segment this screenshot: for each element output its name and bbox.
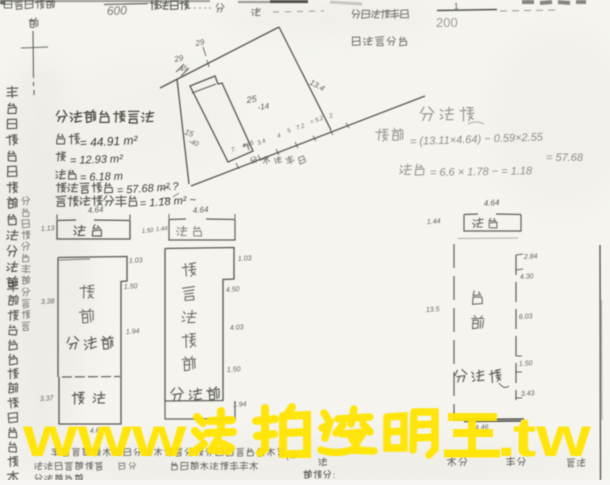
svg-text:= 57.68: = 57.68	[546, 152, 584, 164]
svg-text:1.50: 1.50	[124, 283, 138, 291]
svg-text:3.43: 3.43	[521, 390, 535, 398]
svg-text:1.94: 1.94	[233, 401, 247, 409]
svg-text:1.44: 1.44	[427, 218, 441, 226]
svg-text:4.64: 4.64	[193, 205, 210, 215]
svg-text:2.84: 2.84	[523, 253, 538, 261]
svg-text:4.64: 4.64	[88, 205, 105, 215]
svg-text:4.30: 4.30	[520, 273, 534, 281]
svg-text:1.44: 1.44	[156, 226, 169, 233]
svg-text:600: 600	[107, 3, 128, 18]
svg-text:1.03: 1.03	[238, 255, 252, 263]
svg-text:-14: -14	[257, 101, 270, 112]
svg-text:1.50: 1.50	[142, 228, 155, 235]
svg-text:tw: tw	[513, 407, 592, 469]
svg-text:1.03: 1.03	[129, 257, 143, 265]
svg-text:3.38: 3.38	[41, 298, 55, 306]
svg-text:1.94: 1.94	[126, 328, 140, 336]
svg-text:1.50: 1.50	[519, 360, 533, 368]
svg-text::: :	[333, 471, 335, 480]
svg-text:6.03: 6.03	[519, 313, 533, 321]
svg-text:www.: www.	[22, 407, 203, 469]
svg-text:= 6.6 × 1.78 − = 1.18: = 6.6 × 1.78 − = 1.18	[430, 165, 533, 179]
svg-text:1.50: 1.50	[227, 366, 241, 374]
svg-text:4.50: 4.50	[226, 286, 240, 294]
svg-text:4.64: 4.64	[484, 198, 501, 208]
svg-text:= 6.18 m: = 6.18 m	[80, 171, 124, 184]
svg-text:1.13: 1.13	[41, 225, 55, 233]
svg-text:200: 200	[436, 15, 458, 30]
svg-text:3.37: 3.37	[40, 395, 55, 403]
svg-text:4.03: 4.03	[230, 324, 244, 332]
svg-text:= 12.93 m²: = 12.93 m²	[70, 153, 124, 167]
svg-text:13.5: 13.5	[426, 306, 440, 314]
